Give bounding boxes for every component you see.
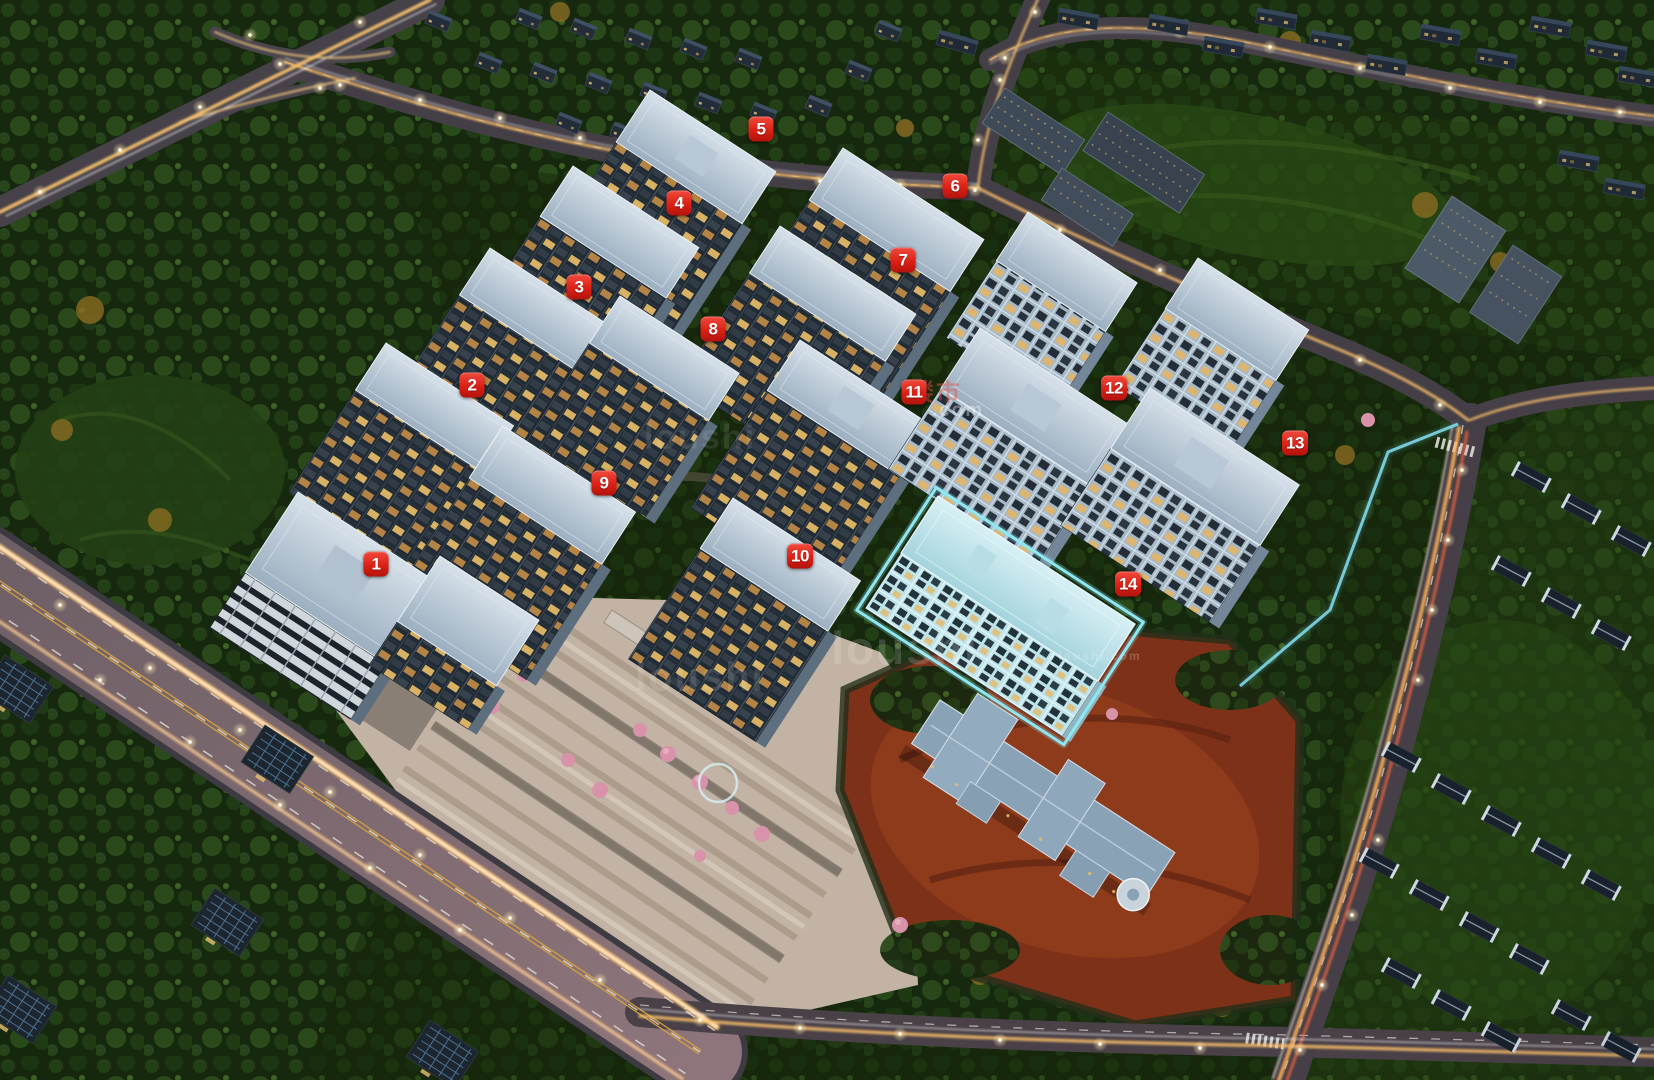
aerial-night-render: 1234567891011121314 loushiloushiloushi楼市… — [0, 0, 1654, 1080]
building-marker-11[interactable]: 11 — [902, 380, 927, 405]
building-marker-8[interactable]: 8 — [701, 317, 726, 342]
building-marker-3[interactable]: 3 — [567, 275, 592, 300]
building-marker-9[interactable]: 9 — [592, 471, 617, 496]
building-marker-12[interactable]: 12 — [1101, 376, 1127, 401]
building-marker-7[interactable]: 7 — [891, 248, 916, 273]
building-marker-13[interactable]: 13 — [1282, 431, 1308, 456]
building-marker-14[interactable]: 14 — [1115, 572, 1141, 597]
building-marker-10[interactable]: 10 — [787, 544, 813, 569]
building-marker-4[interactable]: 4 — [667, 191, 692, 216]
scene-canvas — [0, 0, 1654, 1080]
building-marker-6[interactable]: 6 — [943, 174, 968, 199]
building-marker-1[interactable]: 1 — [364, 552, 389, 577]
building-marker-2[interactable]: 2 — [460, 373, 485, 398]
building-marker-5[interactable]: 5 — [749, 117, 774, 142]
